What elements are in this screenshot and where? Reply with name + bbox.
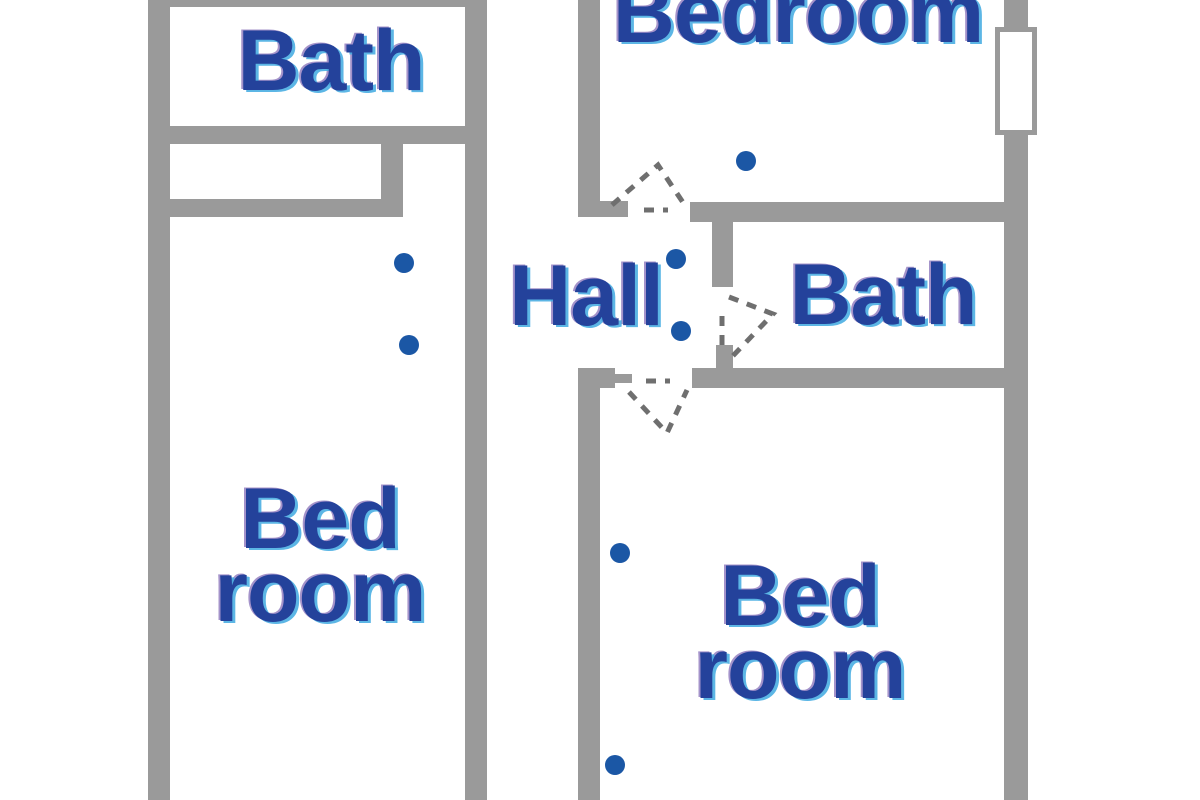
wall-right-outer-main — [1004, 135, 1028, 800]
door-swing-top-bedroom-door — [612, 165, 684, 205]
wall-bedroom-top-left-wall — [578, 0, 600, 217]
wall-bath-right-bottom-wall — [692, 368, 1028, 388]
room-label-bedroom-bottom: Bed room — [695, 560, 906, 706]
wall-closet-bottom — [148, 199, 403, 217]
wall-bedroom-bottom-left-wall — [578, 368, 600, 800]
wall-left-section-top — [148, 0, 487, 7]
wall-bedroom-top-bottom-wall — [690, 202, 1028, 222]
marker-dot-bedroom-top — [736, 151, 756, 171]
wall-bath-left-bottom — [148, 126, 487, 144]
marker-dot-hall-upper — [666, 249, 686, 269]
wall-left-section-right — [465, 0, 487, 800]
wall-hall-bath-divider — [712, 222, 733, 287]
room-label-bedroom-left: Bed room — [215, 483, 426, 629]
wall-bath-door-lower-jamb — [716, 345, 733, 370]
marker-dot-bedroom-bottom-lower — [605, 755, 625, 775]
window-symbol — [995, 27, 1037, 135]
wall-top-door-left-jamb — [598, 201, 628, 217]
marker-dot-bedroom-left-upper — [394, 253, 414, 273]
wall-left-outer — [148, 0, 170, 800]
room-label-bath-left: Bath — [237, 18, 424, 104]
door-swing-right-bath-door — [728, 297, 773, 361]
room-label-bath-right: Bath — [789, 252, 976, 338]
room-label-hall: Hall — [509, 253, 663, 339]
floor-plan: Bath Bed room Hall Bedroom Bath Bed room — [0, 0, 1200, 800]
marker-dot-bedroom-left-lower — [399, 335, 419, 355]
wall-right-outer-top — [1004, 0, 1028, 27]
room-label-bedroom-top: Bedroom — [613, 0, 983, 56]
wall-bottom-door-left-jamb — [615, 374, 632, 383]
marker-dot-bedroom-bottom-upper — [610, 543, 630, 563]
door-swing-bottom-bedroom-door — [629, 390, 687, 433]
marker-dot-hall-lower — [671, 321, 691, 341]
